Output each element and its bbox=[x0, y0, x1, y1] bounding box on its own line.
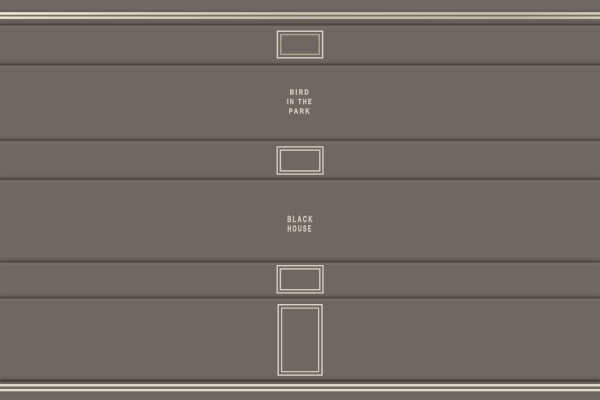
svg-text:BLACK: BLACK bbox=[287, 215, 314, 224]
svg-text:IN THE: IN THE bbox=[287, 97, 313, 106]
svg-text:BIRD: BIRD bbox=[290, 88, 311, 97]
svg-text:HOUSE: HOUSE bbox=[288, 225, 313, 234]
svg-text:PARK: PARK bbox=[289, 106, 311, 115]
